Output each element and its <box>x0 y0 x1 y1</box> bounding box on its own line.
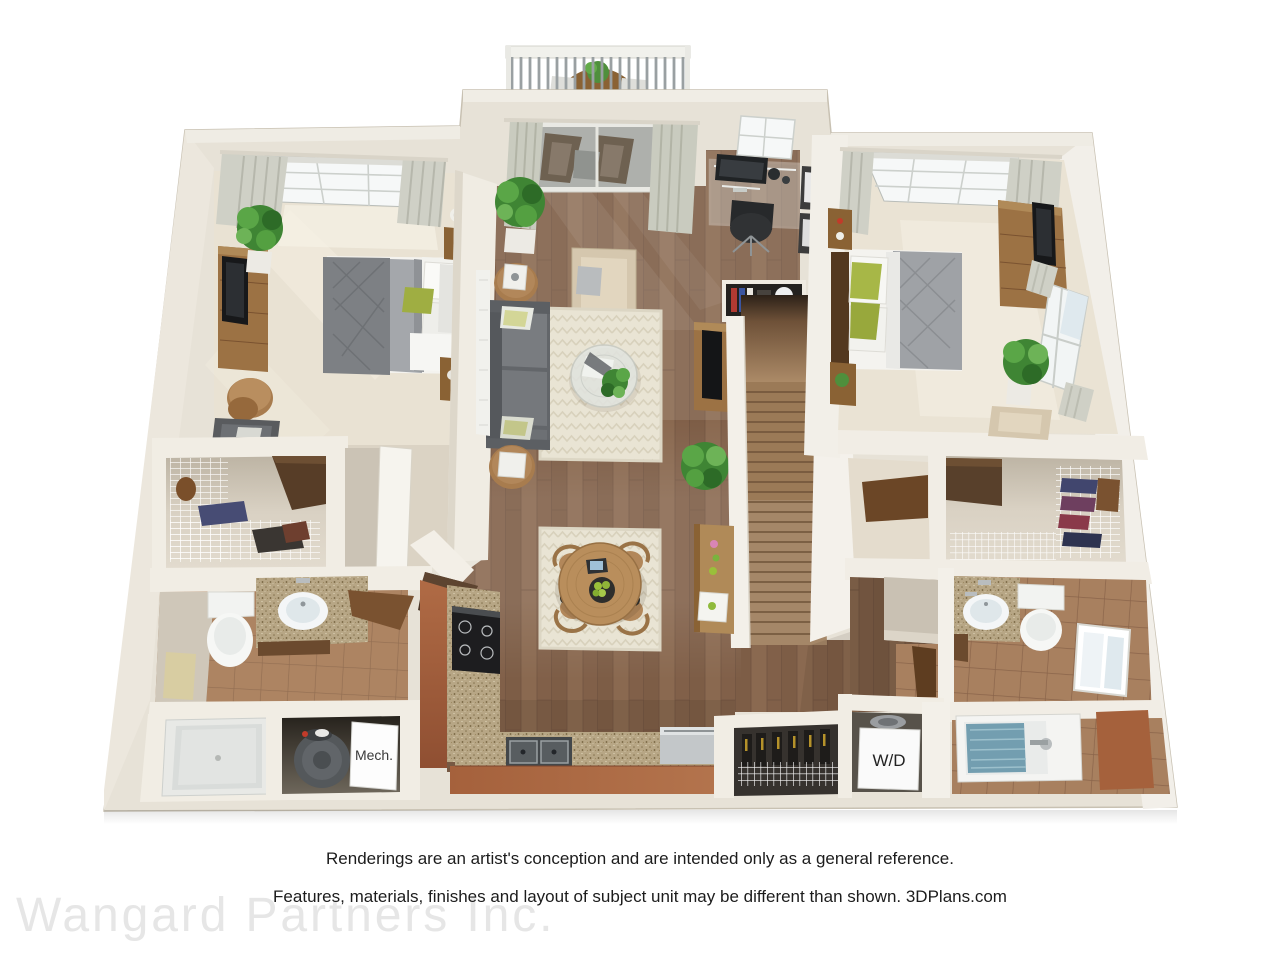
svg-text:W/D: W/D <box>872 751 905 770</box>
svg-text:Features, materials, finishes: Features, materials, finishes and layout… <box>273 887 1007 906</box>
svg-text:Renderings are an artist's con: Renderings are an artist's conception an… <box>326 849 954 868</box>
svg-text:Mech.: Mech. <box>355 747 393 763</box>
